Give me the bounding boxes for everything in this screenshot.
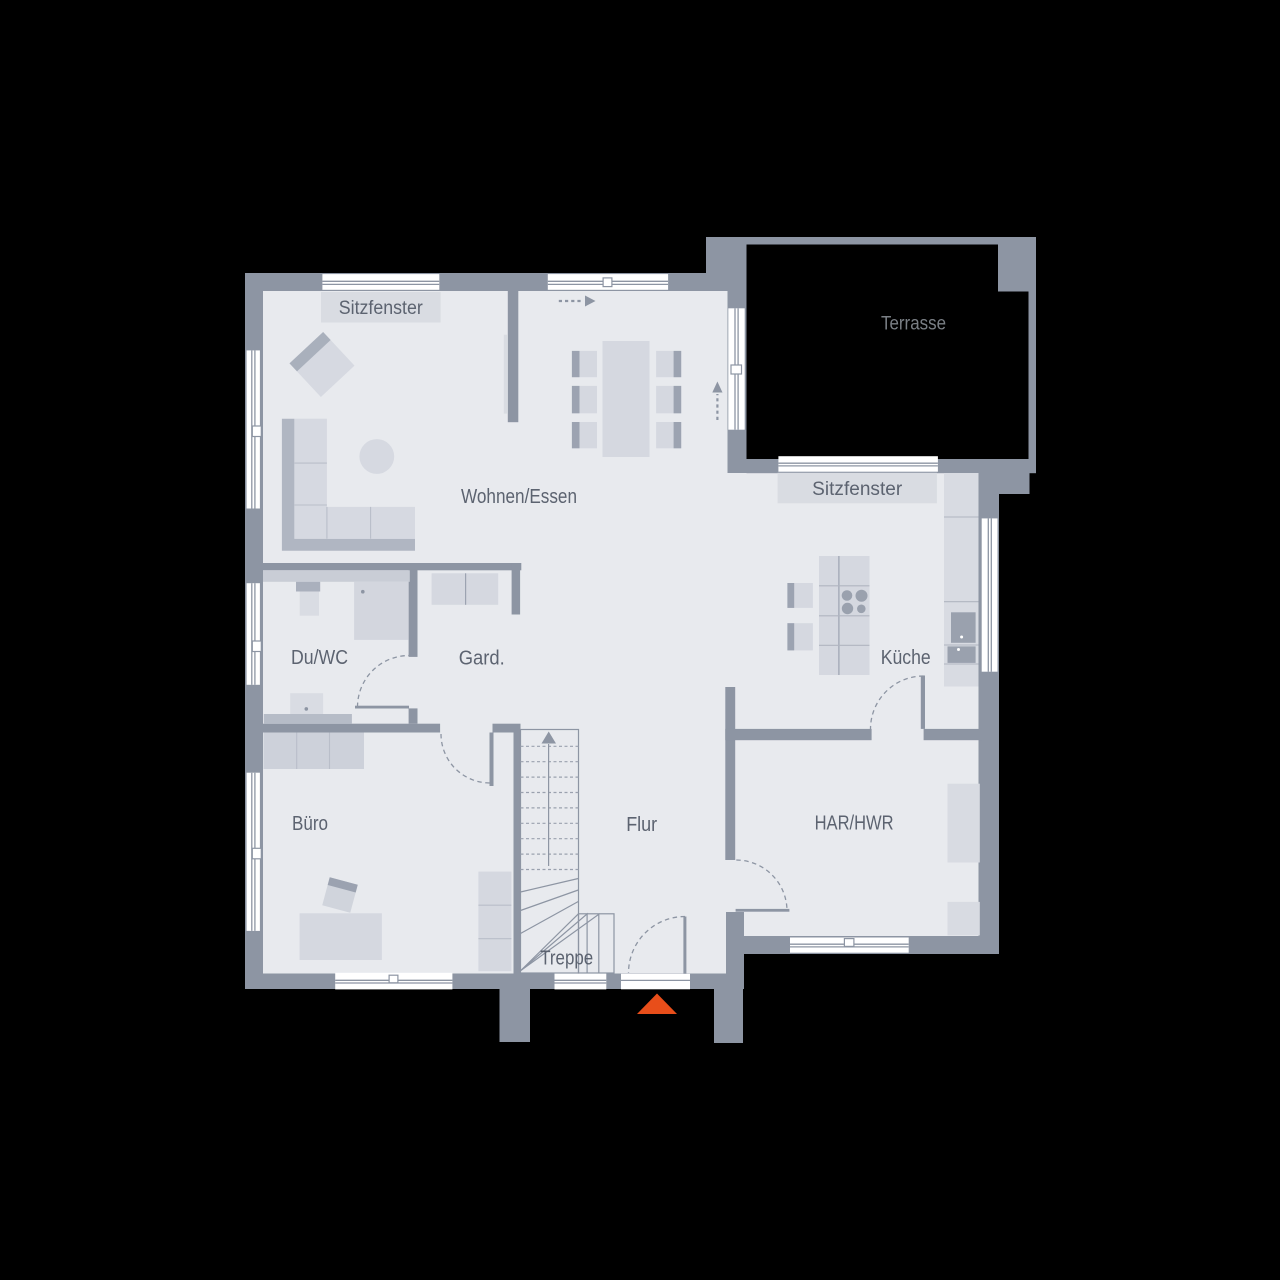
svg-text:Sitzfenster: Sitzfenster: [339, 298, 424, 319]
svg-text:Treppe: Treppe: [540, 948, 593, 970]
svg-text:Küche: Küche: [881, 647, 931, 669]
svg-text:HAR/HWR: HAR/HWR: [815, 813, 894, 835]
svg-text:Büro: Büro: [292, 813, 328, 835]
svg-text:Gard.: Gard.: [459, 648, 505, 670]
svg-text:Wohnen/Essen: Wohnen/Essen: [461, 486, 577, 508]
svg-text:Du/WC: Du/WC: [291, 647, 348, 669]
svg-text:Flur: Flur: [626, 814, 657, 836]
svg-text:Sitzfenster: Sitzfenster: [812, 479, 903, 500]
svg-text:Terrasse: Terrasse: [881, 314, 946, 335]
